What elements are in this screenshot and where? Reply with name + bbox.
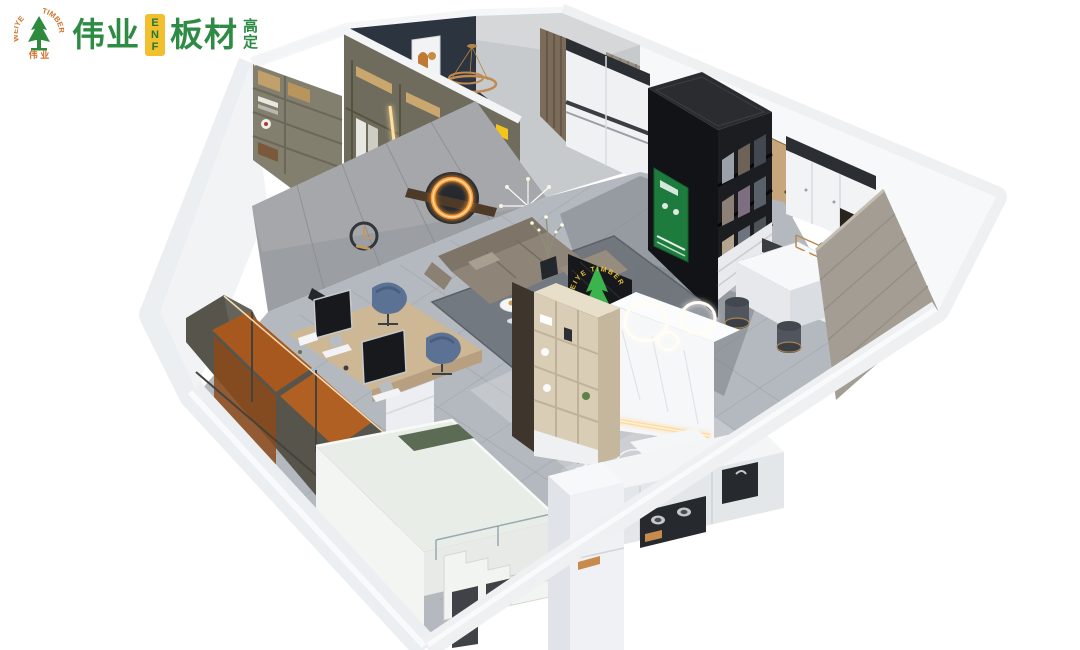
pine-tree-icon [28,16,50,51]
tagline-gaoding: 高 定 [243,19,258,51]
brand-logo: WEIYE TIMBER 伟 业 伟业 E N F 板材 高 定 [14,8,258,62]
tagline-char: 高 [243,19,258,35]
svg-text:WEIYE: WEIYE [14,14,26,43]
isometric-scene: WEIYE TIMBER [0,0,1080,650]
emblem-arc-right: TIMBER [41,8,64,34]
enf-letter: N [151,29,159,41]
enf-letter: E [151,17,158,29]
wordmark-weiye: 伟业 [72,8,140,62]
bar-stool [725,297,749,329]
enf-badge: E N F [145,14,165,56]
wordmark-bancai: 板材 [170,8,238,62]
emblem-arc-left: WEIYE [14,14,26,43]
bar-stool [777,321,801,353]
display-shelf [512,282,620,466]
svg-text:TIMBER: TIMBER [41,8,64,34]
showroom-render: WEIYE TIMBER [0,0,1080,650]
tree-emblem: WEIYE TIMBER 伟 业 [14,8,64,62]
emblem-cn-text: 伟 业 [29,49,50,60]
tagline-char: 定 [243,35,258,51]
enf-letter: F [152,41,159,53]
